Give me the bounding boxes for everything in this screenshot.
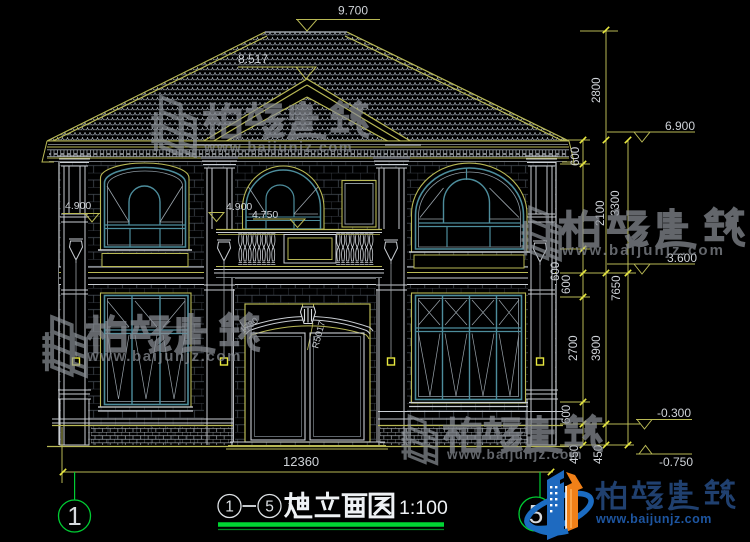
svg-text:1: 1: [67, 501, 81, 531]
svg-text:12360: 12360: [283, 454, 319, 469]
svg-text:www.baijunjz.com: www.baijunjz.com: [203, 140, 353, 156]
svg-text:www.baijunjz.com: www.baijunjz.com: [446, 447, 583, 462]
svg-text:600: 600: [570, 147, 582, 166]
svg-text:-0.300: -0.300: [657, 406, 691, 420]
svg-text:8.517: 8.517: [238, 52, 268, 66]
svg-text:-0.750: -0.750: [659, 455, 693, 469]
svg-text:6.900: 6.900: [665, 119, 695, 133]
svg-text:2800: 2800: [591, 77, 603, 103]
svg-text:4.750: 4.750: [252, 209, 278, 221]
svg-text:1: 1: [225, 499, 234, 516]
svg-text:1:100: 1:100: [399, 497, 448, 519]
svg-text:www.baijunjz.com: www.baijunjz.com: [561, 242, 725, 259]
svg-text:www.baijunjz.com: www.baijunjz.com: [595, 512, 712, 526]
svg-text:9.700: 9.700: [338, 4, 368, 18]
svg-text:5: 5: [265, 499, 274, 516]
svg-text:600: 600: [561, 275, 573, 294]
svg-text:3900: 3900: [591, 335, 603, 361]
svg-text:7650: 7650: [611, 275, 623, 301]
svg-text:www.baijunjz.com: www.baijunjz.com: [86, 348, 242, 365]
svg-text:2700: 2700: [568, 335, 580, 361]
svg-text:4.900: 4.900: [226, 201, 252, 213]
svg-text:4.900: 4.900: [65, 200, 91, 212]
